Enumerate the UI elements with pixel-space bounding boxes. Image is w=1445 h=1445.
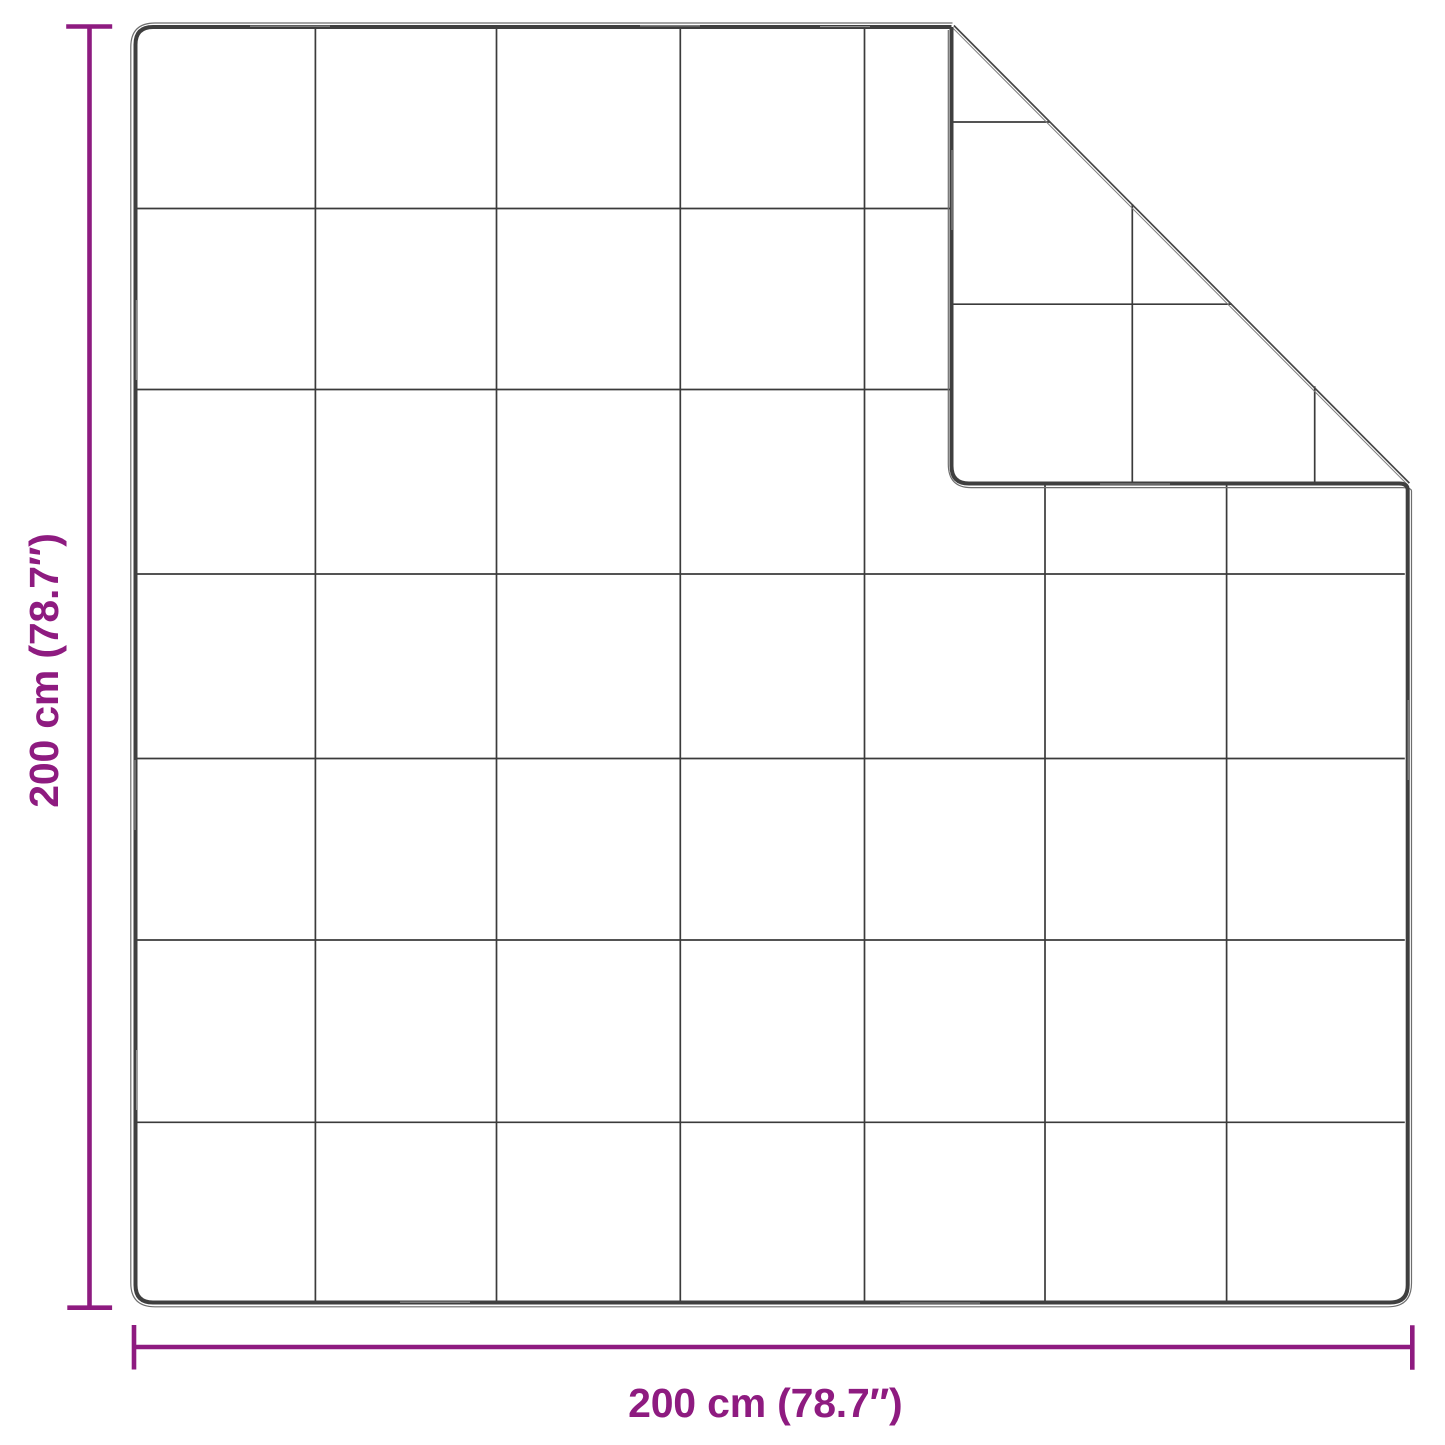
svg-text:200 cm (78.7″): 200 cm (78.7″) [628, 1380, 902, 1426]
svg-text:200 cm (78.7″): 200 cm (78.7″) [21, 533, 67, 807]
